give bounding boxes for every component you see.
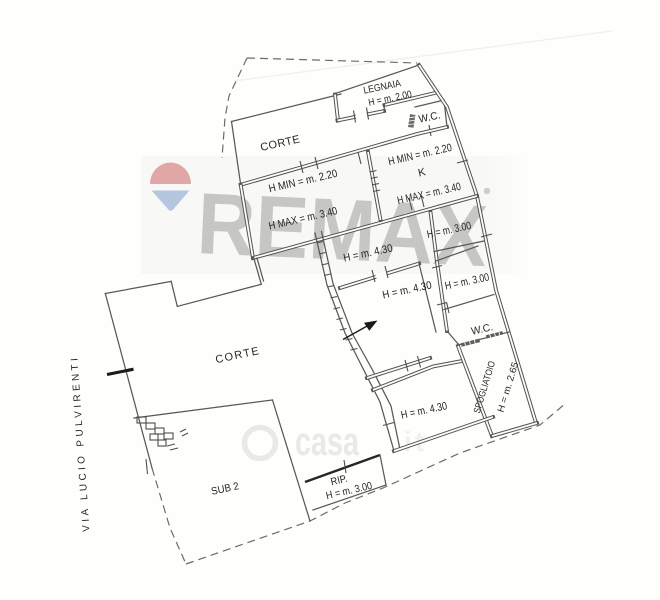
svg-text:H = m. 4.30: H = m. 4.30 [381,279,432,301]
svg-text:VIA LUCIO PULVIRENTI: VIA LUCIO PULVIRENTI [69,358,92,532]
svg-text:H = m. 2.65: H = m. 2.65 [496,361,522,414]
svg-text:casa: casa [295,420,360,464]
svg-text:SPOGLIATOIO: SPOGLIATOIO [472,360,498,415]
svg-text:H = m. 4.30: H = m. 4.30 [400,400,448,422]
svg-text:SUB 2: SUB 2 [210,480,240,498]
svg-text:CORTE: CORTE [259,133,303,154]
svg-text:W.C.: W.C. [418,109,442,125]
svg-text:CORTE: CORTE [214,345,261,366]
